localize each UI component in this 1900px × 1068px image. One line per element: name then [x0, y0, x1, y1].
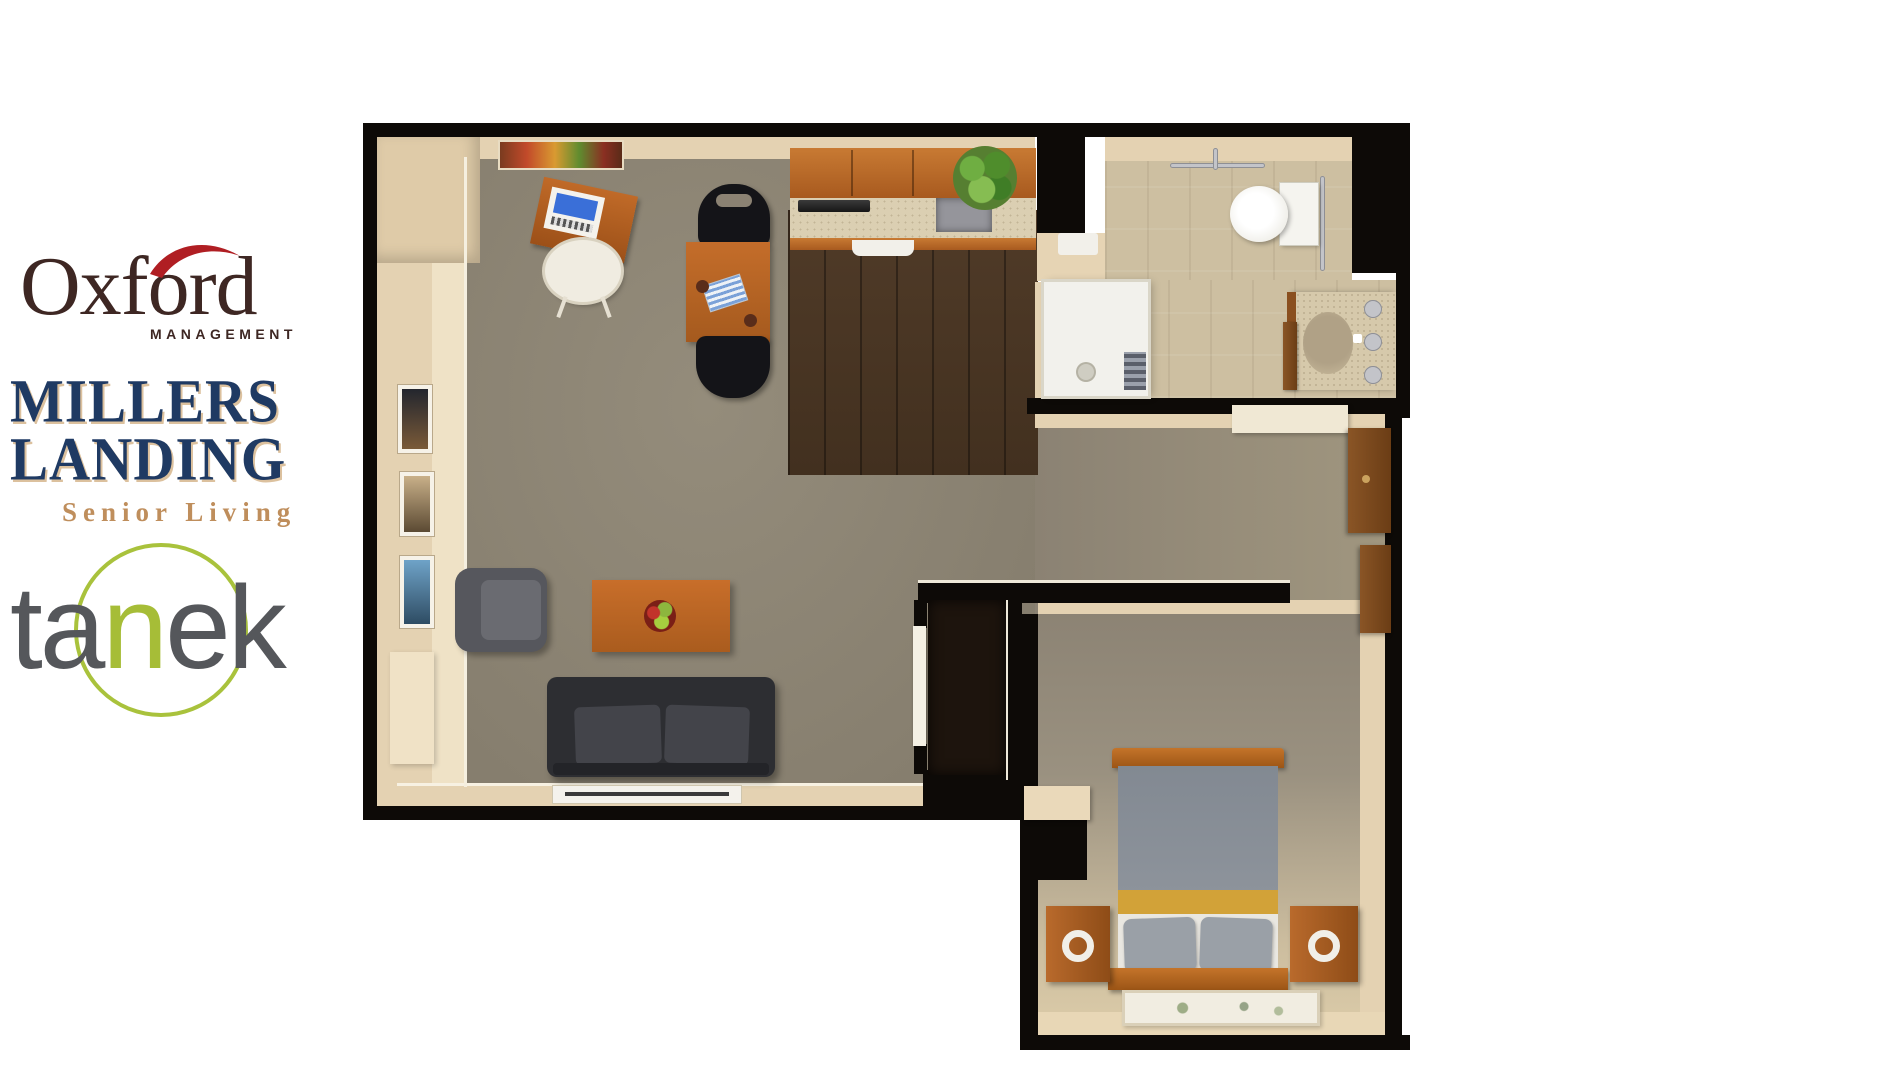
dishwasher [852, 240, 914, 256]
cabinet-divider [912, 150, 914, 196]
pillow [1199, 917, 1273, 973]
bathroom-bottom-wall [1027, 398, 1410, 414]
tv-screen [565, 792, 729, 796]
kitchen-bath-partition [1035, 282, 1044, 398]
desk-monitor [544, 187, 606, 239]
window-seat-ledge [390, 652, 434, 764]
chair-handle-slot [716, 194, 752, 207]
millers-line2: LANDING [10, 430, 290, 490]
bedroom-shelf [1024, 786, 1090, 820]
framed-picture [400, 472, 434, 536]
papers [703, 275, 747, 311]
cup [696, 280, 709, 293]
headboard [1112, 748, 1284, 768]
wall-basin [1058, 233, 1098, 255]
armchair [455, 568, 547, 652]
dining-table [686, 242, 770, 342]
cabinet-divider [851, 150, 853, 196]
faucet-spout [1364, 333, 1382, 351]
bedroom-rug [1122, 990, 1320, 1026]
monitor-screen [553, 193, 598, 221]
wall-art [500, 142, 622, 168]
fruit-bowl [644, 600, 676, 632]
pillow [1123, 917, 1197, 973]
cooktop [798, 200, 870, 212]
entry-closet-door-lower [1360, 545, 1391, 633]
oxford-swoosh-icon [148, 240, 244, 280]
toilet-bowl [1230, 186, 1288, 242]
tv [553, 786, 741, 803]
faucet-handle [1364, 366, 1382, 384]
table-lamp [1308, 930, 1340, 962]
sofa [547, 677, 775, 777]
millers-line1: MILLERS [10, 372, 290, 432]
exterior-wall-right-bath [1396, 260, 1410, 418]
table-lamp [1062, 930, 1094, 962]
tanek-logo: tanek [10, 560, 284, 696]
coffee-table [592, 580, 730, 652]
armchair-cushion [481, 580, 541, 640]
bedroom-right-wall-band [1360, 600, 1385, 1035]
vanity-sink [1303, 312, 1353, 374]
bedroom-wall-jog [1020, 817, 1087, 880]
closet-right-wall [1006, 600, 1022, 780]
cup [744, 314, 757, 327]
tanek-part1: ta [10, 562, 102, 694]
exterior-wall-left [363, 123, 377, 820]
sofa-cushion [574, 705, 662, 766]
nightstand-right [1290, 906, 1358, 982]
sofa-base [553, 763, 769, 775]
bath-corner-wall [1352, 123, 1410, 273]
footboard [1108, 968, 1288, 990]
exterior-wall-top [363, 123, 1042, 137]
closet-door-jamb [914, 744, 927, 774]
closet-door [913, 626, 926, 746]
faucet-handle [1364, 300, 1382, 318]
grab-bar-vertical [1320, 176, 1325, 271]
desk-chair [545, 240, 621, 302]
shower [1044, 282, 1148, 396]
millers-landing-logo: MILLERS LANDING [10, 372, 290, 486]
bathroom-top-wall-band [1105, 137, 1352, 161]
grab-bar-post [1213, 148, 1218, 170]
bathroom-door [1283, 322, 1297, 390]
closet-interior [928, 600, 1006, 775]
framed-picture [400, 556, 434, 628]
left-baseboard [464, 157, 467, 787]
sofa-cushion [664, 705, 750, 766]
tanek-accent-letter: n [102, 562, 165, 694]
potted-plant [953, 146, 1017, 210]
exterior-wall-bottom-bedroom [1020, 1035, 1410, 1050]
kitchen-bath-wall-column [1037, 123, 1085, 233]
closet-door-jamb [914, 600, 927, 628]
closet-door-knob [1362, 475, 1370, 483]
nightstand-left [1046, 906, 1110, 982]
entry-closet-shelf [1232, 405, 1348, 433]
soap-dish [1353, 334, 1362, 343]
bed-comforter [1118, 766, 1278, 892]
dining-chair-top [698, 184, 770, 246]
oxford-subtitle: MANAGEMENT [150, 326, 297, 342]
framed-picture [398, 385, 432, 453]
oxford-logo: Oxford [20, 238, 300, 338]
exterior-wall-bottom-living [363, 806, 923, 820]
millers-tagline: Senior Living [62, 497, 296, 528]
shower-drain [1078, 364, 1094, 380]
shower-mat [1124, 352, 1146, 390]
floorplan-page: Oxford MANAGEMENT MILLERS LANDING Senior… [0, 0, 1900, 1068]
tanek-part2: ek [165, 562, 284, 694]
dining-chair-bottom [696, 336, 770, 398]
